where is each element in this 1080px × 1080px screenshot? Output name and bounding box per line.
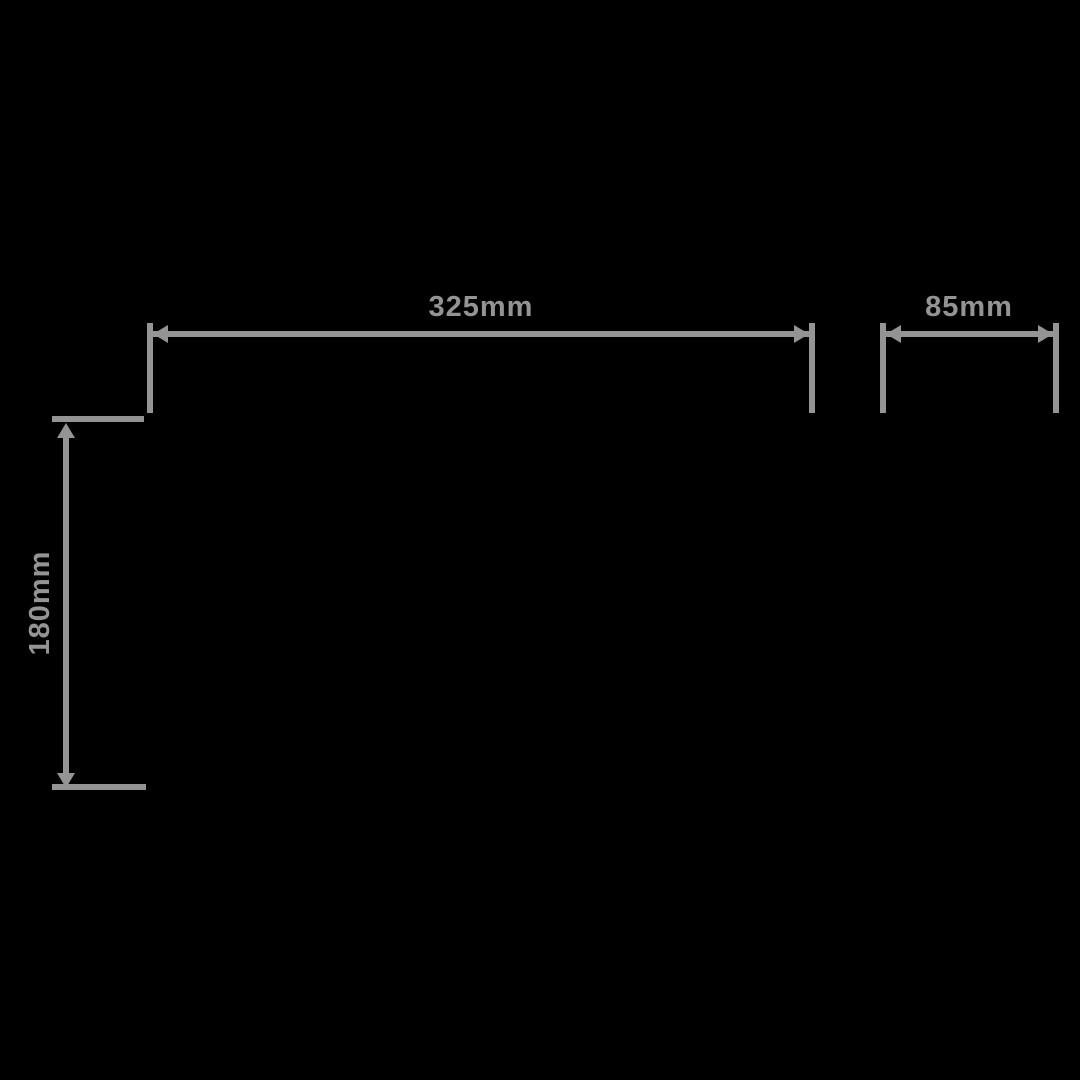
arrowhead-up-icon bbox=[57, 423, 75, 438]
extension-line-85mm-right bbox=[1053, 323, 1059, 413]
extension-line-325mm-right bbox=[809, 323, 815, 413]
arrowhead-left-icon bbox=[153, 325, 168, 343]
extension-line-180mm-top bbox=[52, 416, 144, 422]
dimension-line-85mm bbox=[886, 331, 1053, 337]
dimension-line-180mm bbox=[63, 428, 69, 778]
arrowhead-right-icon bbox=[794, 325, 809, 343]
arrowhead-down-icon bbox=[57, 773, 75, 788]
dimension-drawing-canvas: 325mm 85mm 180mm bbox=[0, 0, 1080, 1080]
arrowhead-left-icon bbox=[886, 325, 901, 343]
dimension-85mm-label: 85mm bbox=[819, 291, 1080, 323]
arrowhead-right-icon bbox=[1038, 325, 1053, 343]
dimension-line-325mm bbox=[153, 331, 809, 337]
dimension-180mm-label: 180mm bbox=[24, 453, 56, 753]
dimension-325mm-label: 325mm bbox=[331, 291, 631, 323]
